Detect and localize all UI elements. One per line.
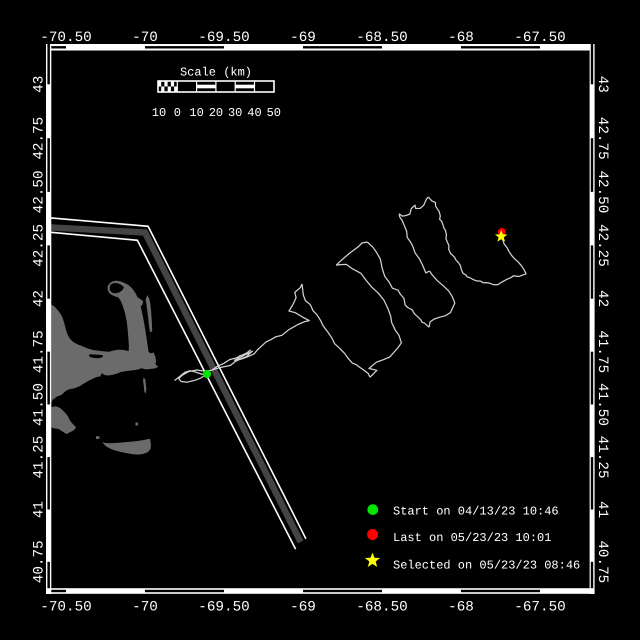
svg-text:-70.50: -70.50 [40,600,91,616]
svg-text:-70: -70 [132,600,158,616]
svg-text:-67.50: -67.50 [514,600,565,616]
svg-text:Start on 04/13/23 10:46: Start on 04/13/23 10:46 [393,505,559,519]
svg-text:41: 41 [31,501,47,518]
svg-text:42.50: 42.50 [594,170,610,213]
svg-text:-68.50: -68.50 [356,600,407,616]
svg-text:10: 10 [189,106,203,120]
svg-text:Scale (km): Scale (km) [180,66,252,80]
svg-text:Last on 05/23/23 10:01: Last on 05/23/23 10:01 [393,531,551,545]
svg-text:42: 42 [31,290,47,307]
svg-text:42.75: 42.75 [31,117,47,160]
svg-text:41.25: 41.25 [594,436,610,479]
svg-text:42.25: 42.25 [31,224,47,267]
svg-text:-67.50: -67.50 [514,30,565,46]
svg-text:-70.50: -70.50 [40,30,91,46]
svg-text:42.50: 42.50 [31,170,47,213]
svg-text:50: 50 [267,106,281,120]
svg-text:41.75: 41.75 [31,330,47,373]
svg-text:30: 30 [228,106,242,120]
svg-text:42.25: 42.25 [594,224,610,267]
svg-text:40: 40 [247,106,261,120]
svg-text:43: 43 [31,76,47,93]
svg-text:-68: -68 [448,30,474,46]
svg-text:-69.50: -69.50 [198,600,249,616]
svg-text:41.75: 41.75 [594,330,610,373]
svg-text:Selected on 05/23/23 08:46: Selected on 05/23/23 08:46 [393,559,580,573]
svg-text:40.75: 40.75 [31,540,47,583]
svg-text:43: 43 [594,76,610,93]
svg-text:-68.50: -68.50 [356,30,407,46]
svg-text:41: 41 [594,501,610,518]
svg-text:0: 0 [174,106,181,120]
svg-text:-69: -69 [290,30,316,46]
svg-text:42: 42 [594,290,610,307]
svg-text:10: 10 [152,106,166,120]
svg-text:-69: -69 [290,600,316,616]
svg-text:41.50: 41.50 [594,383,610,426]
svg-text:-69.50: -69.50 [198,30,249,46]
svg-text:42.75: 42.75 [594,117,610,160]
svg-text:-68: -68 [448,600,474,616]
svg-text:-70: -70 [132,30,158,46]
svg-text:40.75: 40.75 [594,540,610,583]
svg-text:41.25: 41.25 [31,436,47,479]
svg-text:20: 20 [209,106,223,120]
svg-text:41.50: 41.50 [31,383,47,426]
